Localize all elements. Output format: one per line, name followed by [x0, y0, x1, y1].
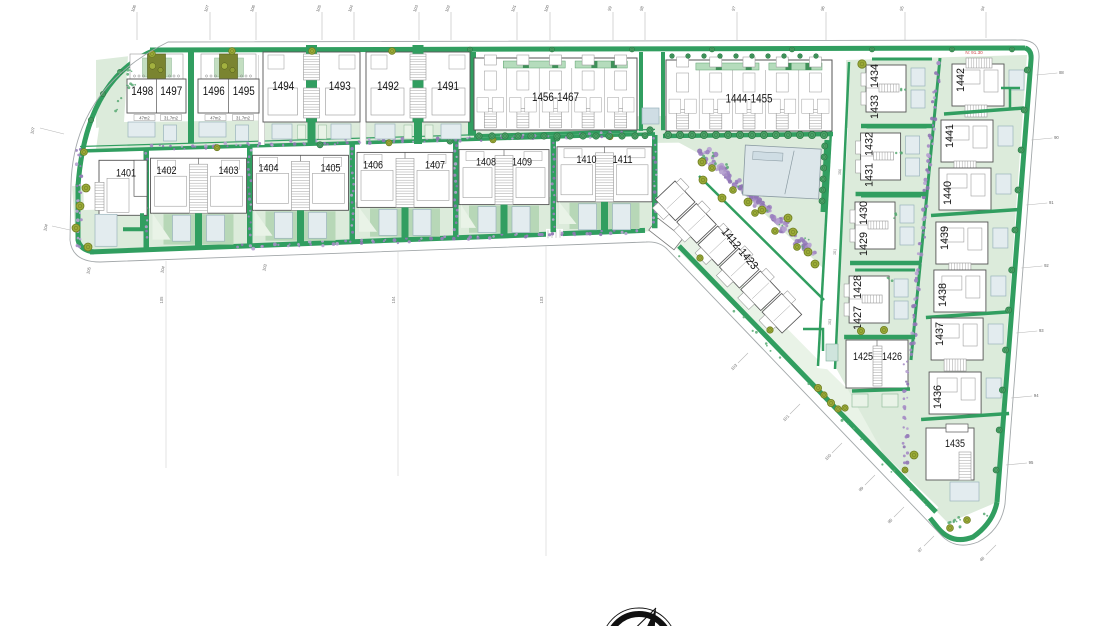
svg-text:100: 100 — [838, 169, 842, 176]
svg-text:1442: 1442 — [955, 68, 967, 92]
svg-text:1493: 1493 — [329, 79, 351, 93]
svg-text:101: 101 — [833, 249, 837, 256]
svg-text:1407: 1407 — [425, 159, 445, 171]
svg-text:1428: 1428 — [852, 275, 864, 299]
svg-text:1497: 1497 — [160, 84, 182, 98]
svg-text:1404: 1404 — [259, 162, 279, 174]
svg-text:90: 90 — [1054, 135, 1059, 140]
svg-text:1406: 1406 — [363, 159, 383, 171]
svg-text:1440: 1440 — [942, 181, 954, 205]
svg-text:47m2: 47m2 — [139, 116, 150, 121]
svg-text:91: 91 — [1049, 200, 1054, 205]
svg-text:1409: 1409 — [512, 157, 532, 169]
svg-text:1411: 1411 — [613, 154, 633, 166]
svg-text:1492: 1492 — [377, 79, 399, 93]
svg-text:1437: 1437 — [934, 322, 946, 346]
svg-text:1427: 1427 — [852, 306, 864, 330]
svg-text:1410: 1410 — [577, 154, 597, 166]
svg-text:1430: 1430 — [858, 201, 870, 225]
svg-text:104: 104 — [391, 296, 396, 304]
svg-text:95: 95 — [1029, 460, 1034, 465]
svg-text:88: 88 — [1059, 70, 1064, 75]
svg-text:N: 91.30: N: 91.30 — [965, 50, 983, 55]
svg-text:1456-1467: 1456-1467 — [532, 90, 579, 104]
svg-text:1441: 1441 — [944, 124, 956, 148]
svg-text:1434: 1434 — [869, 64, 881, 88]
svg-text:1498: 1498 — [131, 84, 153, 98]
svg-text:1495: 1495 — [233, 84, 255, 98]
svg-text:1433: 1433 — [869, 95, 881, 119]
svg-text:1496: 1496 — [203, 84, 225, 98]
svg-text:103: 103 — [828, 319, 832, 326]
svg-text:1432: 1432 — [864, 132, 876, 156]
svg-text:1494: 1494 — [272, 79, 294, 93]
svg-text:1444-1455: 1444-1455 — [726, 92, 773, 106]
svg-text:31.7m2: 31.7m2 — [236, 116, 251, 121]
svg-text:1408: 1408 — [476, 157, 496, 169]
svg-text:92: 92 — [1044, 263, 1049, 268]
svg-text:1401: 1401 — [116, 167, 136, 179]
svg-text:103: 103 — [539, 296, 544, 304]
svg-text:1439: 1439 — [939, 226, 951, 250]
svg-text:1431: 1431 — [864, 163, 876, 187]
svg-text:1402: 1402 — [157, 165, 177, 177]
svg-text:94: 94 — [1034, 393, 1039, 398]
svg-text:31.7m2: 31.7m2 — [164, 116, 179, 121]
svg-text:1425: 1425 — [853, 351, 873, 363]
svg-text:105: 105 — [159, 296, 164, 304]
svg-text:1426: 1426 — [882, 351, 902, 363]
svg-text:1429: 1429 — [858, 232, 870, 256]
svg-text:1435: 1435 — [945, 438, 965, 450]
svg-text:1405: 1405 — [321, 162, 341, 174]
svg-text:1436: 1436 — [932, 385, 944, 409]
svg-text:1403: 1403 — [219, 165, 239, 177]
svg-text:93: 93 — [1039, 328, 1044, 333]
svg-text:47m2: 47m2 — [210, 116, 221, 121]
svg-text:1491: 1491 — [437, 79, 459, 93]
svg-text:1438: 1438 — [937, 283, 949, 307]
